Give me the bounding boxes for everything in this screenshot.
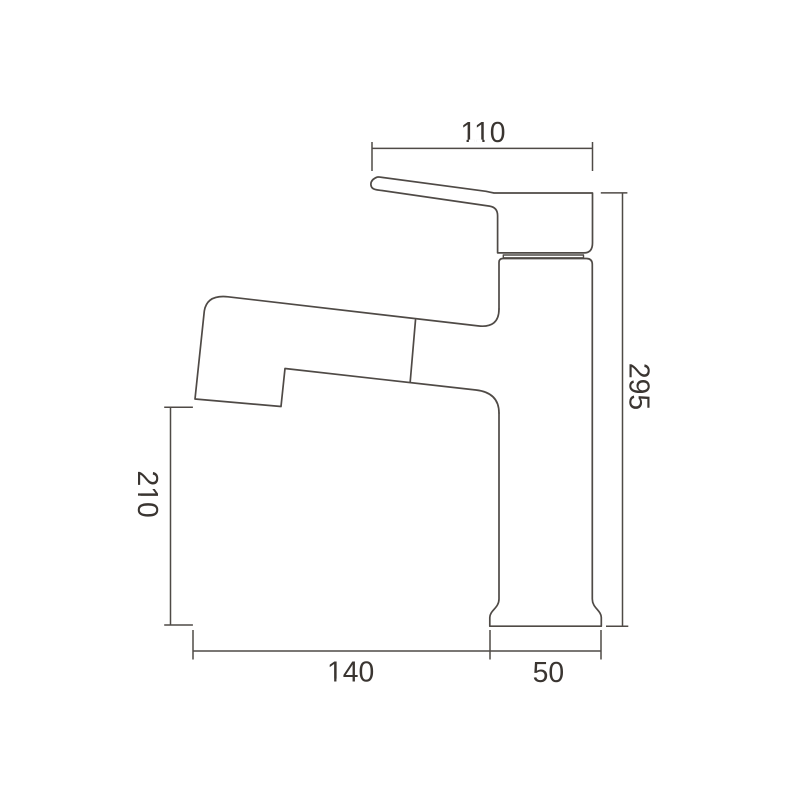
svg-text:295: 295 xyxy=(623,363,655,410)
svg-text:110: 110 xyxy=(460,116,505,148)
svg-text:210: 210 xyxy=(132,470,164,517)
svg-text:140: 140 xyxy=(327,655,374,687)
svg-text:50: 50 xyxy=(533,656,564,688)
